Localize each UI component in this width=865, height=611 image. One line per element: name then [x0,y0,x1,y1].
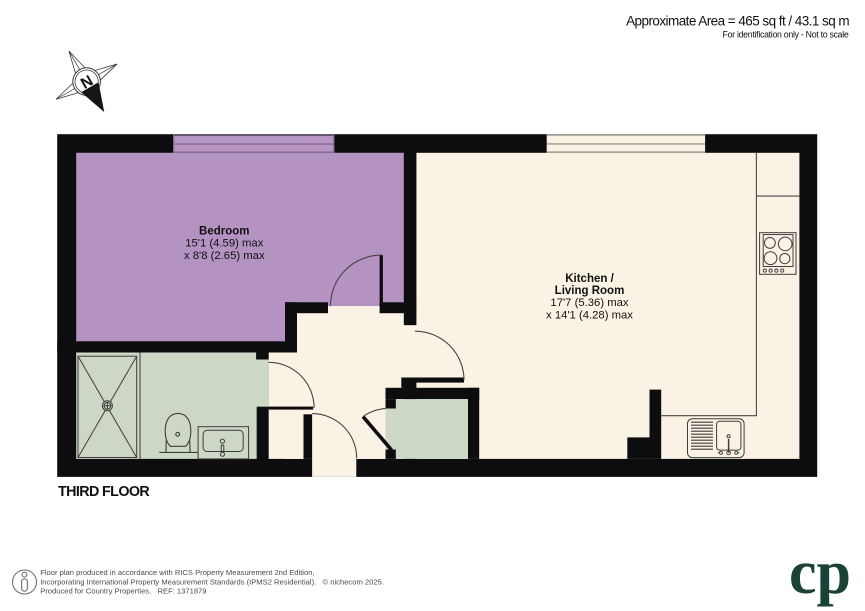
svg-text:Bedroom: Bedroom [199,225,249,237]
svg-text:x 8'8 (2.65) max: x 8'8 (2.65) max [184,250,265,262]
svg-text:Kitchen /: Kitchen / [565,273,614,285]
svg-text:x 14'1 (4.28) max: x 14'1 (4.28) max [546,309,633,321]
svg-text:Approximate Area = 465 sq ft /: Approximate Area = 465 sq ft / 43.1 sq m [626,13,849,28]
svg-text:Produced for Country Propertie: Produced for Country Properties. REF: 13… [40,587,206,596]
svg-text:For identification only - Not: For identification only - Not to scale [723,30,849,40]
svg-text:Incorporating International Pr: Incorporating International Property Mea… [40,577,384,586]
svg-text:THIRD FLOOR: THIRD FLOOR [58,484,150,500]
svg-text:17'7 (5.36) max: 17'7 (5.36) max [550,297,628,309]
svg-text:Living Room: Living Room [555,285,625,297]
svg-text:cp: cp [789,539,851,607]
svg-text:Floor plan produced in accorda: Floor plan produced in accordance with R… [40,568,314,577]
svg-text:15'1 (4.59) max: 15'1 (4.59) max [185,238,263,250]
